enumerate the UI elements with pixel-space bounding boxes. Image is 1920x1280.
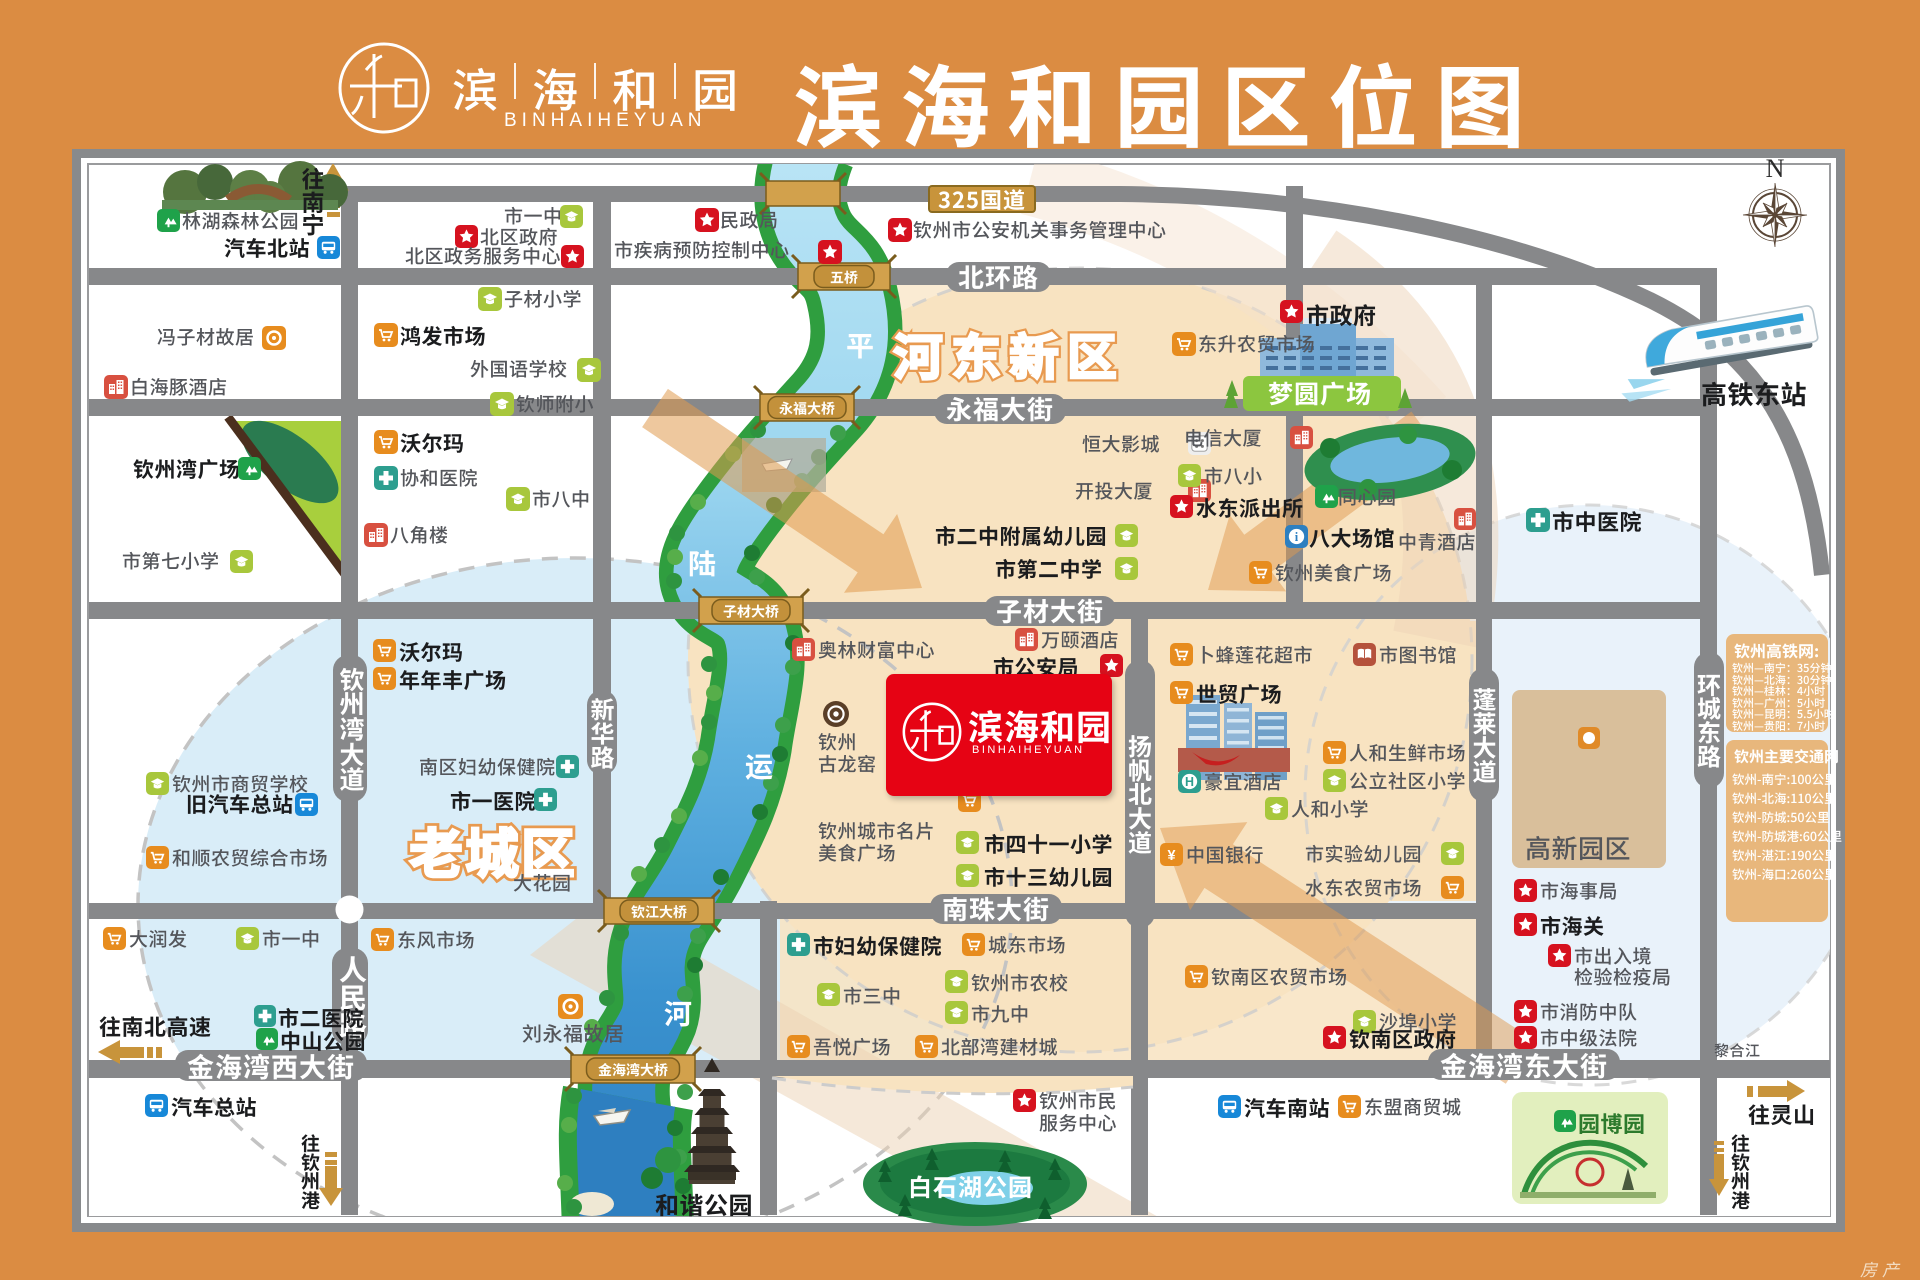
svg-text:钦江大桥: 钦江大桥 bbox=[631, 902, 687, 922]
svg-text:N: N bbox=[1766, 154, 1785, 183]
svg-text:¥: ¥ bbox=[1168, 848, 1176, 864]
svg-text:H: H bbox=[1185, 775, 1194, 789]
svg-text:金海湾大桥: 金海湾大桥 bbox=[598, 1060, 668, 1080]
svg-text:永福大桥: 永福大桥 bbox=[779, 399, 835, 419]
svg-text:i: i bbox=[1295, 530, 1299, 544]
svg-text:子材大桥: 子材大桥 bbox=[723, 602, 779, 622]
svg-text:五桥: 五桥 bbox=[830, 268, 858, 288]
